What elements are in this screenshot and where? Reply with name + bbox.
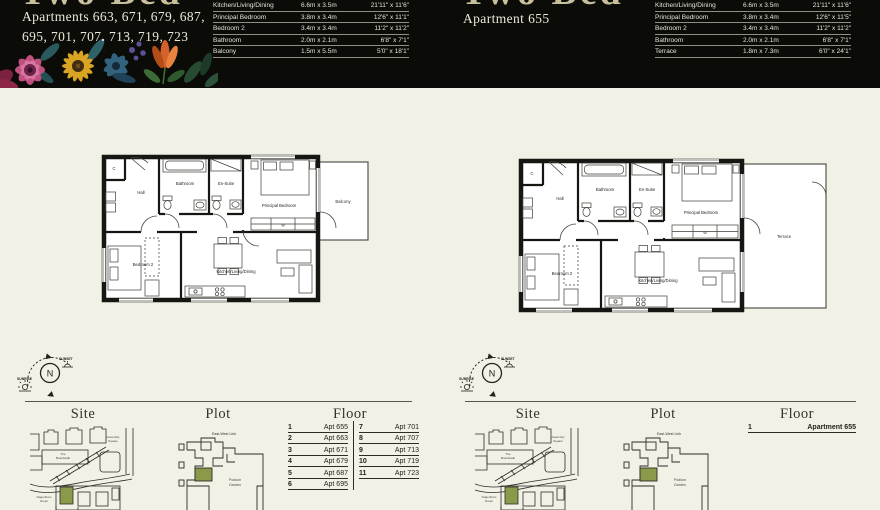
outer-wall xyxy=(521,161,742,310)
sunrise-icon xyxy=(460,380,474,391)
flower-blue xyxy=(102,52,136,85)
balcony-label: Balcony xyxy=(335,199,351,204)
dim-row: Principal Bedroom3.8m x 3.4m12'6" x 11'5… xyxy=(655,12,851,24)
floor-list-col1: 1Apt 655 2Apt 663 3Apt 671 4Apt 679 5Apt… xyxy=(288,421,354,490)
east-west-link-label: East-West Link xyxy=(212,432,236,436)
floor-row: 6Apt 695 xyxy=(288,479,348,491)
svg-text:Green: Green xyxy=(40,499,49,503)
podium-garden-label: Podium Garden xyxy=(674,478,686,487)
svg-text:Boardwalk: Boardwalk xyxy=(56,456,71,460)
svg-text:Podium: Podium xyxy=(674,478,686,482)
svg-text:Garden: Garden xyxy=(229,483,241,487)
floor-row: 3Apt 671 xyxy=(288,444,348,456)
divider-rule-right xyxy=(465,401,856,402)
dim-row: Terrace1.8m x 7.3m6'0" x 24'1" xyxy=(655,46,851,58)
floor-list-col2: 7Apt 701 8Apt 707 9Apt 713 10Apt 719 11A… xyxy=(354,421,419,490)
svg-text:Green: Green xyxy=(485,499,494,503)
floorplan-right: Terrace xyxy=(518,156,833,316)
sunset-icon xyxy=(504,361,515,367)
floor-row: 1Apartment 655 xyxy=(748,421,856,433)
brochure-page: Two Bed Apartments 663, 671, 679, 687, 6… xyxy=(0,0,880,510)
floral-artwork xyxy=(0,26,218,88)
compass-right: N SUNRISE SUNSET xyxy=(458,342,522,400)
left-dimensions-table: Kitchen/Living/Dining6.6m x 3.5m21'11" x… xyxy=(213,0,409,58)
floor-row: 2Apt 663 xyxy=(288,433,348,445)
sunset-icon xyxy=(62,361,73,367)
floorplan-left: Balcony xyxy=(101,152,373,306)
highlighted-unit xyxy=(640,468,657,481)
highlighted-building xyxy=(60,487,73,504)
sunset-label: SUNSET xyxy=(501,357,516,361)
highlighted-building xyxy=(505,487,518,504)
compass-left: N SUNRISE SUNSET xyxy=(16,342,80,400)
dim-row: Bathroom2.0m x 2.1m6'8" x 7'1" xyxy=(213,35,409,47)
flower-orange xyxy=(142,40,187,85)
sunset-label: SUNSET xyxy=(59,357,74,361)
svg-text:Garden: Garden xyxy=(674,483,686,487)
site-heading-right: Site xyxy=(493,406,563,423)
hall-label: Hall xyxy=(556,196,563,201)
dim-row: Kitchen/Living/Dining6.6m x 3.5m21'11" x… xyxy=(655,0,851,12)
principal-bedroom-label: Principal Bedroom xyxy=(262,203,297,208)
floor-row: 9Apt 713 xyxy=(359,444,419,456)
terrace-label: Terrace xyxy=(777,234,792,239)
outer-wall xyxy=(104,157,318,300)
site-heading-left: Site xyxy=(48,406,118,423)
floor-row: 11Apt 723 xyxy=(359,467,419,479)
svg-text:Podium: Podium xyxy=(229,478,241,482)
right-dimensions-table: Kitchen/Living/Dining6.6m x 3.5m21'11" x… xyxy=(655,0,851,58)
kitchen-living-dining-label: Kitchen/Living/Dining xyxy=(638,278,678,283)
plot-heading-right: Plot xyxy=(628,406,698,423)
kitchen-living-dining-label: Kitchen/Living/Dining xyxy=(216,269,256,274)
arrow-icon xyxy=(45,353,52,360)
dim-row: Principal Bedroom3.8m x 3.4m12'6" x 11'1… xyxy=(213,12,409,24)
right-subtitle: Apartment 655 xyxy=(463,9,683,29)
floor-list-col1: 1Apartment 655 xyxy=(748,421,856,433)
floor-list-left: 1Apt 655 2Apt 663 3Apt 671 4Apt 679 5Apt… xyxy=(288,421,419,490)
north-label: N xyxy=(47,369,54,379)
floor-list-right: 1Apartment 655 xyxy=(748,421,856,433)
bedroom2-label: Bedroom 2 xyxy=(133,262,154,267)
closet-label: C xyxy=(530,171,533,176)
podium-garden-label: Podium Garden xyxy=(229,478,241,487)
svg-text:Square: Square xyxy=(108,439,118,443)
east-west-link-label: East-West Link xyxy=(657,432,681,436)
sparkle-dot xyxy=(102,39,104,41)
plot-outline xyxy=(179,438,263,510)
dim-row: Bedroom 23.4m x 3.4m11'2" x 11'2" xyxy=(213,23,409,35)
closet-label: C xyxy=(112,166,115,171)
sunrise-icon xyxy=(18,380,32,391)
svg-text:Square: Square xyxy=(553,439,563,443)
plot-outline xyxy=(624,438,708,510)
dim-row: Balcony1.5m x 5.5m5'0" x 18'1" xyxy=(213,46,409,58)
svg-text:Boardwalk: Boardwalk xyxy=(501,456,516,460)
principal-bedroom-label: Principal Bedroom xyxy=(684,210,719,215)
divider-rule-left xyxy=(25,401,412,402)
site-map-right: Assembly Square The Boardwalk Dagenham G… xyxy=(475,424,587,510)
berries-purple xyxy=(129,41,146,60)
floor-row: 5Apt 687 xyxy=(288,467,348,479)
bathroom-label: Bathroom xyxy=(596,187,615,192)
floor-row: 7Apt 701 xyxy=(359,421,419,433)
floor-row: 1Apt 655 xyxy=(288,421,348,433)
bathroom-label: Bathroom xyxy=(176,181,195,186)
ensuite-label: En-Suite xyxy=(639,187,656,192)
arrow-icon xyxy=(487,353,494,360)
north-label: N xyxy=(489,369,496,379)
hall-label: Hall xyxy=(137,190,144,195)
plot-map-left: East-West Link Podium Garden xyxy=(165,428,283,510)
site-map-left: Assembly Square The Boardwalk Dagenham G… xyxy=(30,424,142,510)
sparkle-dot xyxy=(125,35,127,37)
arrow-icon xyxy=(488,391,496,399)
highlighted-unit xyxy=(195,468,212,481)
bedroom2-label: Bedroom 2 xyxy=(552,271,573,276)
flower-pink xyxy=(15,55,45,85)
ensuite-label: En-Suite xyxy=(218,181,235,186)
wardrobe-label: W xyxy=(703,231,707,235)
wardrobe-label: W xyxy=(281,224,285,228)
page-header: Two Bed Apartments 663, 671, 679, 687, 6… xyxy=(0,0,880,88)
dim-row: Kitchen/Living/Dining6.6m x 3.5m21'11" x… xyxy=(213,0,409,12)
floor-row: 4Apt 679 xyxy=(288,456,348,468)
floor-row: 10Apt 719 xyxy=(359,456,419,468)
dim-row: Bathroom2.0m x 2.1m6'8" x 7'1" xyxy=(655,35,851,47)
plot-heading-left: Plot xyxy=(183,406,253,423)
dim-row: Bedroom 23.4m x 3.4m11'2" x 11'2" xyxy=(655,23,851,35)
arrow-icon xyxy=(46,391,54,399)
floor-row: 8Apt 707 xyxy=(359,433,419,445)
plot-map-right: East-West Link Podium Garden xyxy=(610,428,728,510)
